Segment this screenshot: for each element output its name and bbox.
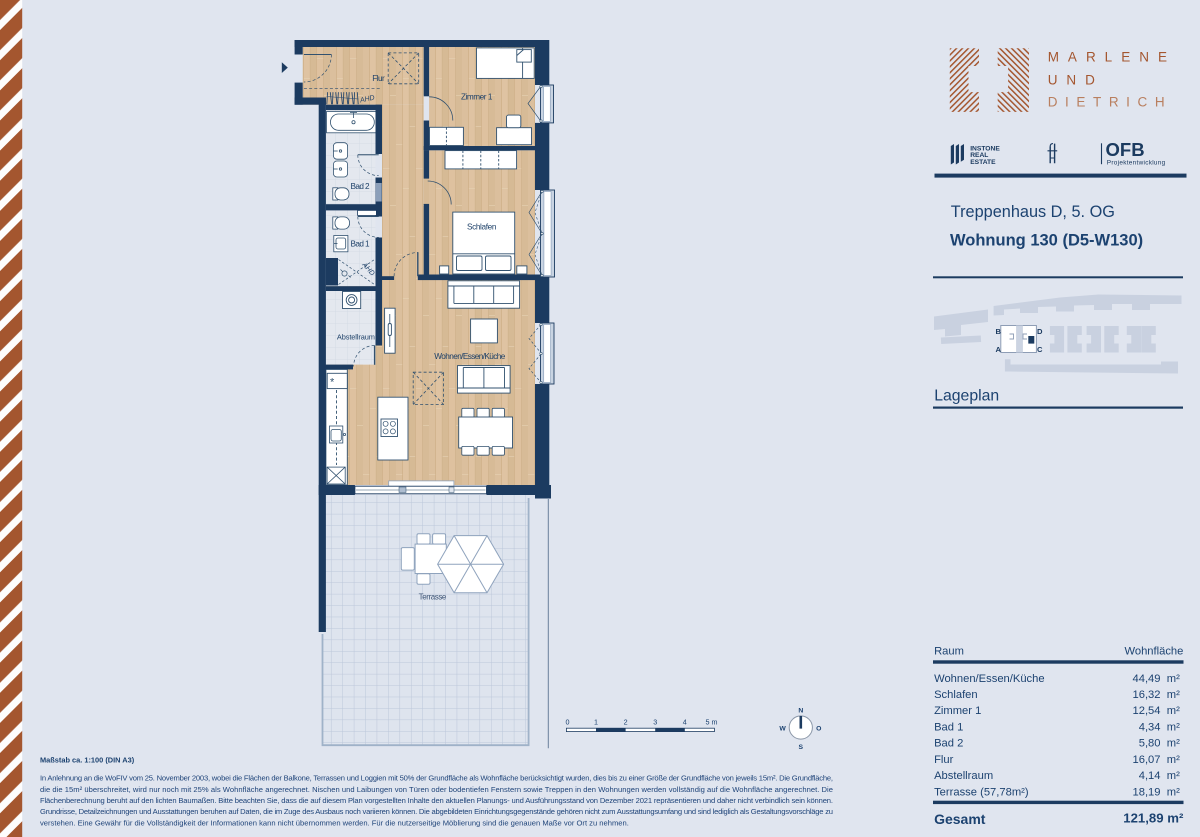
svg-text:1: 1 (594, 718, 598, 727)
svg-text:Terrasse (57,78m²): Terrasse (57,78m²) (934, 787, 1029, 799)
svg-text:Flur: Flur (934, 754, 954, 766)
svg-text:5,80: 5,80 (1139, 738, 1161, 750)
svg-text:Bad 2: Bad 2 (934, 738, 963, 750)
svg-text:Gesamt: Gesamt (934, 811, 986, 827)
svg-text:Bad 1: Bad 1 (351, 239, 370, 248)
svg-text:16,07: 16,07 (1133, 754, 1161, 766)
svg-text:4: 4 (683, 718, 687, 727)
svg-text:Projektentwicklung: Projektentwicklung (1107, 159, 1166, 166)
svg-text:m²: m² (1167, 738, 1180, 750)
svg-text:Maßstab ca. 1:100 (DIN A3): Maßstab ca. 1:100 (DIN A3) (40, 756, 135, 765)
svg-text:O: O (816, 725, 821, 732)
svg-text:UND: UND (1048, 72, 1104, 87)
svg-text:m²: m² (1167, 722, 1180, 734)
svg-text:Bad 2: Bad 2 (351, 182, 370, 191)
svg-text:3: 3 (653, 718, 657, 727)
svg-text:Lageplan: Lageplan (934, 387, 999, 404)
svg-text:Raum: Raum (934, 646, 964, 658)
svg-text:die die 15m² überschreitet, wi: die die 15m² überschreitet, wird nur noc… (40, 785, 833, 794)
svg-text:m²: m² (1167, 787, 1180, 799)
svg-text:Abstellraum: Abstellraum (337, 333, 375, 342)
svg-text:A: A (995, 345, 1001, 354)
svg-text:*: * (330, 377, 335, 389)
svg-text:121,89 m²: 121,89 m² (1123, 811, 1184, 826)
svg-text:4,14: 4,14 (1139, 770, 1161, 782)
svg-text:2: 2 (624, 718, 628, 727)
svg-text:44,49: 44,49 (1133, 673, 1161, 685)
svg-text:Wohnen/Essen/Küche: Wohnen/Essen/Küche (434, 352, 505, 361)
svg-text:Treppenhaus D, 5. OG: Treppenhaus D, 5. OG (951, 203, 1115, 221)
svg-text:S: S (799, 744, 804, 751)
svg-text:16,32: 16,32 (1133, 689, 1161, 701)
svg-text:Zimmer 1: Zimmer 1 (934, 705, 981, 717)
svg-text:m²: m² (1167, 705, 1180, 717)
svg-text:5 m: 5 m (706, 718, 718, 727)
svg-text:Schlafen: Schlafen (467, 222, 497, 231)
svg-text:verstehen. Eine Gewähr für die: verstehen. Eine Gewähr für die Vollständ… (40, 818, 629, 827)
svg-text:Wohnfläche: Wohnfläche (1125, 646, 1184, 658)
svg-text:m²: m² (1167, 673, 1180, 685)
svg-text:0: 0 (566, 718, 570, 727)
svg-text:m²: m² (1167, 770, 1180, 782)
svg-text:18,19: 18,19 (1133, 787, 1161, 799)
svg-text:N: N (798, 708, 803, 715)
svg-text:Schlafen: Schlafen (934, 689, 978, 701)
svg-text:Wohnung 130 (D5-W130): Wohnung 130 (D5-W130) (950, 231, 1143, 249)
svg-text:C: C (1037, 345, 1043, 354)
svg-text:Wohnen/Essen/Küche: Wohnen/Essen/Küche (934, 673, 1045, 685)
svg-text:ESTATE: ESTATE (970, 159, 996, 166)
svg-text:Grundrisse, Detailzeichnungen: Grundrisse, Detailzeichnungen und Aussta… (40, 807, 833, 816)
svg-text:Terrasse: Terrasse (419, 592, 447, 601)
svg-text:W: W (779, 725, 786, 732)
svg-text:B: B (995, 327, 1001, 336)
svg-text:DIETRICH: DIETRICH (1048, 94, 1173, 109)
svg-text:Flächenberechnung beruht auf d: Flächenberechnung beruht auf den lichten… (40, 796, 833, 805)
svg-text:Flur: Flur (372, 74, 385, 83)
svg-text:MARLENE: MARLENE (1048, 50, 1176, 65)
svg-text:m²: m² (1167, 689, 1180, 701)
svg-text:12,54: 12,54 (1133, 705, 1161, 717)
svg-text:D: D (1037, 327, 1043, 336)
svg-text:4,34: 4,34 (1139, 722, 1161, 734)
svg-text:OFB: OFB (1106, 139, 1145, 160)
svg-text:Bad 1: Bad 1 (934, 722, 963, 734)
svg-text:Abstellraum: Abstellraum (934, 770, 993, 782)
svg-text:m²: m² (1167, 754, 1180, 766)
svg-text:In Anlehnung an die WoFIV vom: In Anlehnung an die WoFIV vom 25. Novemb… (40, 774, 833, 783)
svg-text:Zimmer 1: Zimmer 1 (461, 93, 493, 102)
